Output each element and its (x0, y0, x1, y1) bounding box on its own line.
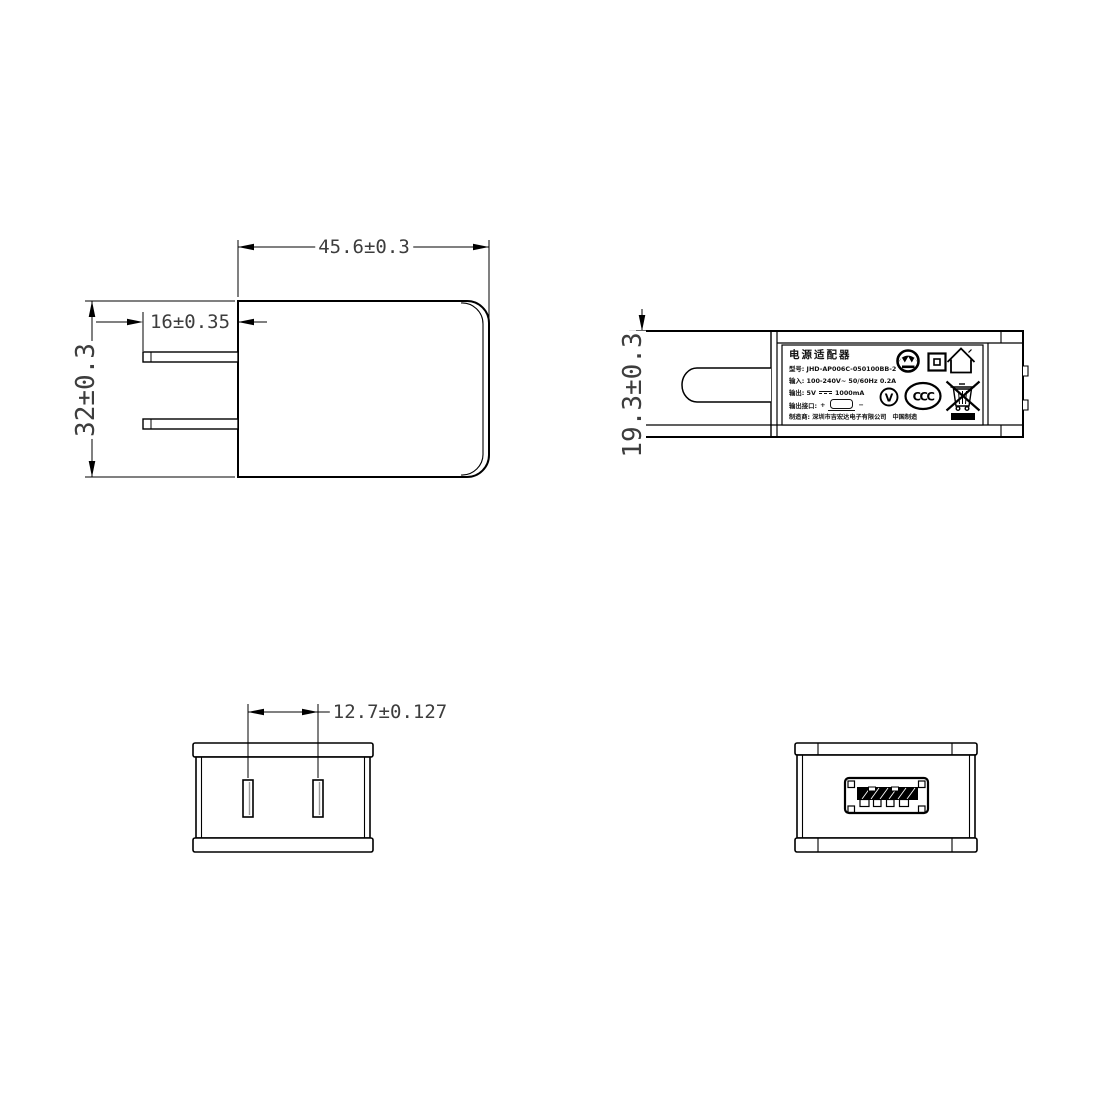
label-model: 型号: JHD-AP006C-050100BB-2 (789, 364, 896, 373)
black-bar-icon (951, 413, 975, 420)
dim-text-side-height: 19.3±0.3 (620, 330, 646, 459)
end-tab-upper (1023, 366, 1028, 376)
adapter-body-outline (238, 301, 489, 477)
product-label: 电源适配器 型号: JHD-AP006C-050100BB-2 输入: 100-… (782, 345, 983, 425)
usb-end-view (795, 743, 977, 852)
label-output-prefix: 输出: 5V (789, 388, 816, 397)
usb-port-icon (845, 778, 928, 813)
dim-text-front-height: 32±0.3 (73, 341, 99, 439)
label-input-rating: 输入: 100-240V~ 50/60Hz 0.2A (789, 376, 896, 385)
plus-sign: + (820, 401, 825, 409)
prong-upper (143, 352, 238, 362)
technical-drawing-power-adapter: V CCC (0, 0, 1100, 1100)
dc-output-icon (819, 391, 832, 395)
prong-lower (143, 419, 238, 429)
label-port-text: 输出接口: (789, 401, 817, 410)
drawing-linework: V CCC (0, 0, 1100, 1100)
label-output-current: 1000mA (835, 389, 864, 397)
usb-pin-4 (900, 800, 909, 807)
dim-text-prong-pitch: 12.7±0.127 (330, 702, 450, 722)
usb-pin-2 (874, 800, 882, 807)
prong-slot-right (313, 780, 323, 817)
arrowhead (127, 319, 143, 326)
end-bottom-cap (795, 838, 977, 852)
arrowhead (238, 244, 254, 251)
usb-pin-1 (860, 800, 869, 807)
label-output-rating: 输出: 5V 1000mA (789, 388, 864, 397)
end-tab-lower (1023, 400, 1028, 410)
usb-pin-3 (887, 800, 895, 807)
arrowhead (639, 315, 646, 331)
arrowhead (248, 709, 264, 716)
dim-text-front-width: 45.6±0.3 (315, 237, 413, 257)
arrowhead (302, 709, 318, 716)
prong-side-profile (682, 368, 771, 402)
arrowhead (89, 461, 96, 477)
label-made-in: 中国制造 (892, 412, 917, 421)
front-view (85, 240, 489, 477)
arrowhead (89, 301, 96, 317)
end-top-cap (795, 743, 977, 755)
minus-sign: − (858, 401, 863, 409)
bottom-bottom-cap (193, 838, 373, 852)
label-manufacturer: 制造商: 深圳市吉宏达电子有限公司 (789, 412, 886, 421)
usb-tongue-notch-2 (892, 787, 899, 791)
label-title: 电源适配器 (789, 347, 852, 362)
label-output-port: 输出接口: + − (789, 399, 864, 411)
arrowhead (473, 244, 489, 251)
usb-tongue-notch-1 (869, 787, 876, 791)
bottom-body (196, 757, 370, 838)
bottom-view (193, 704, 373, 852)
prong-slot-left (243, 780, 253, 817)
usb-plug-icon (828, 399, 855, 411)
bottom-top-cap (193, 743, 373, 757)
dim-text-prong-length: 16±0.35 (147, 312, 233, 332)
label-manufacturer-row: 制造商: 深圳市吉宏达电子有限公司 中国制造 (789, 412, 975, 421)
